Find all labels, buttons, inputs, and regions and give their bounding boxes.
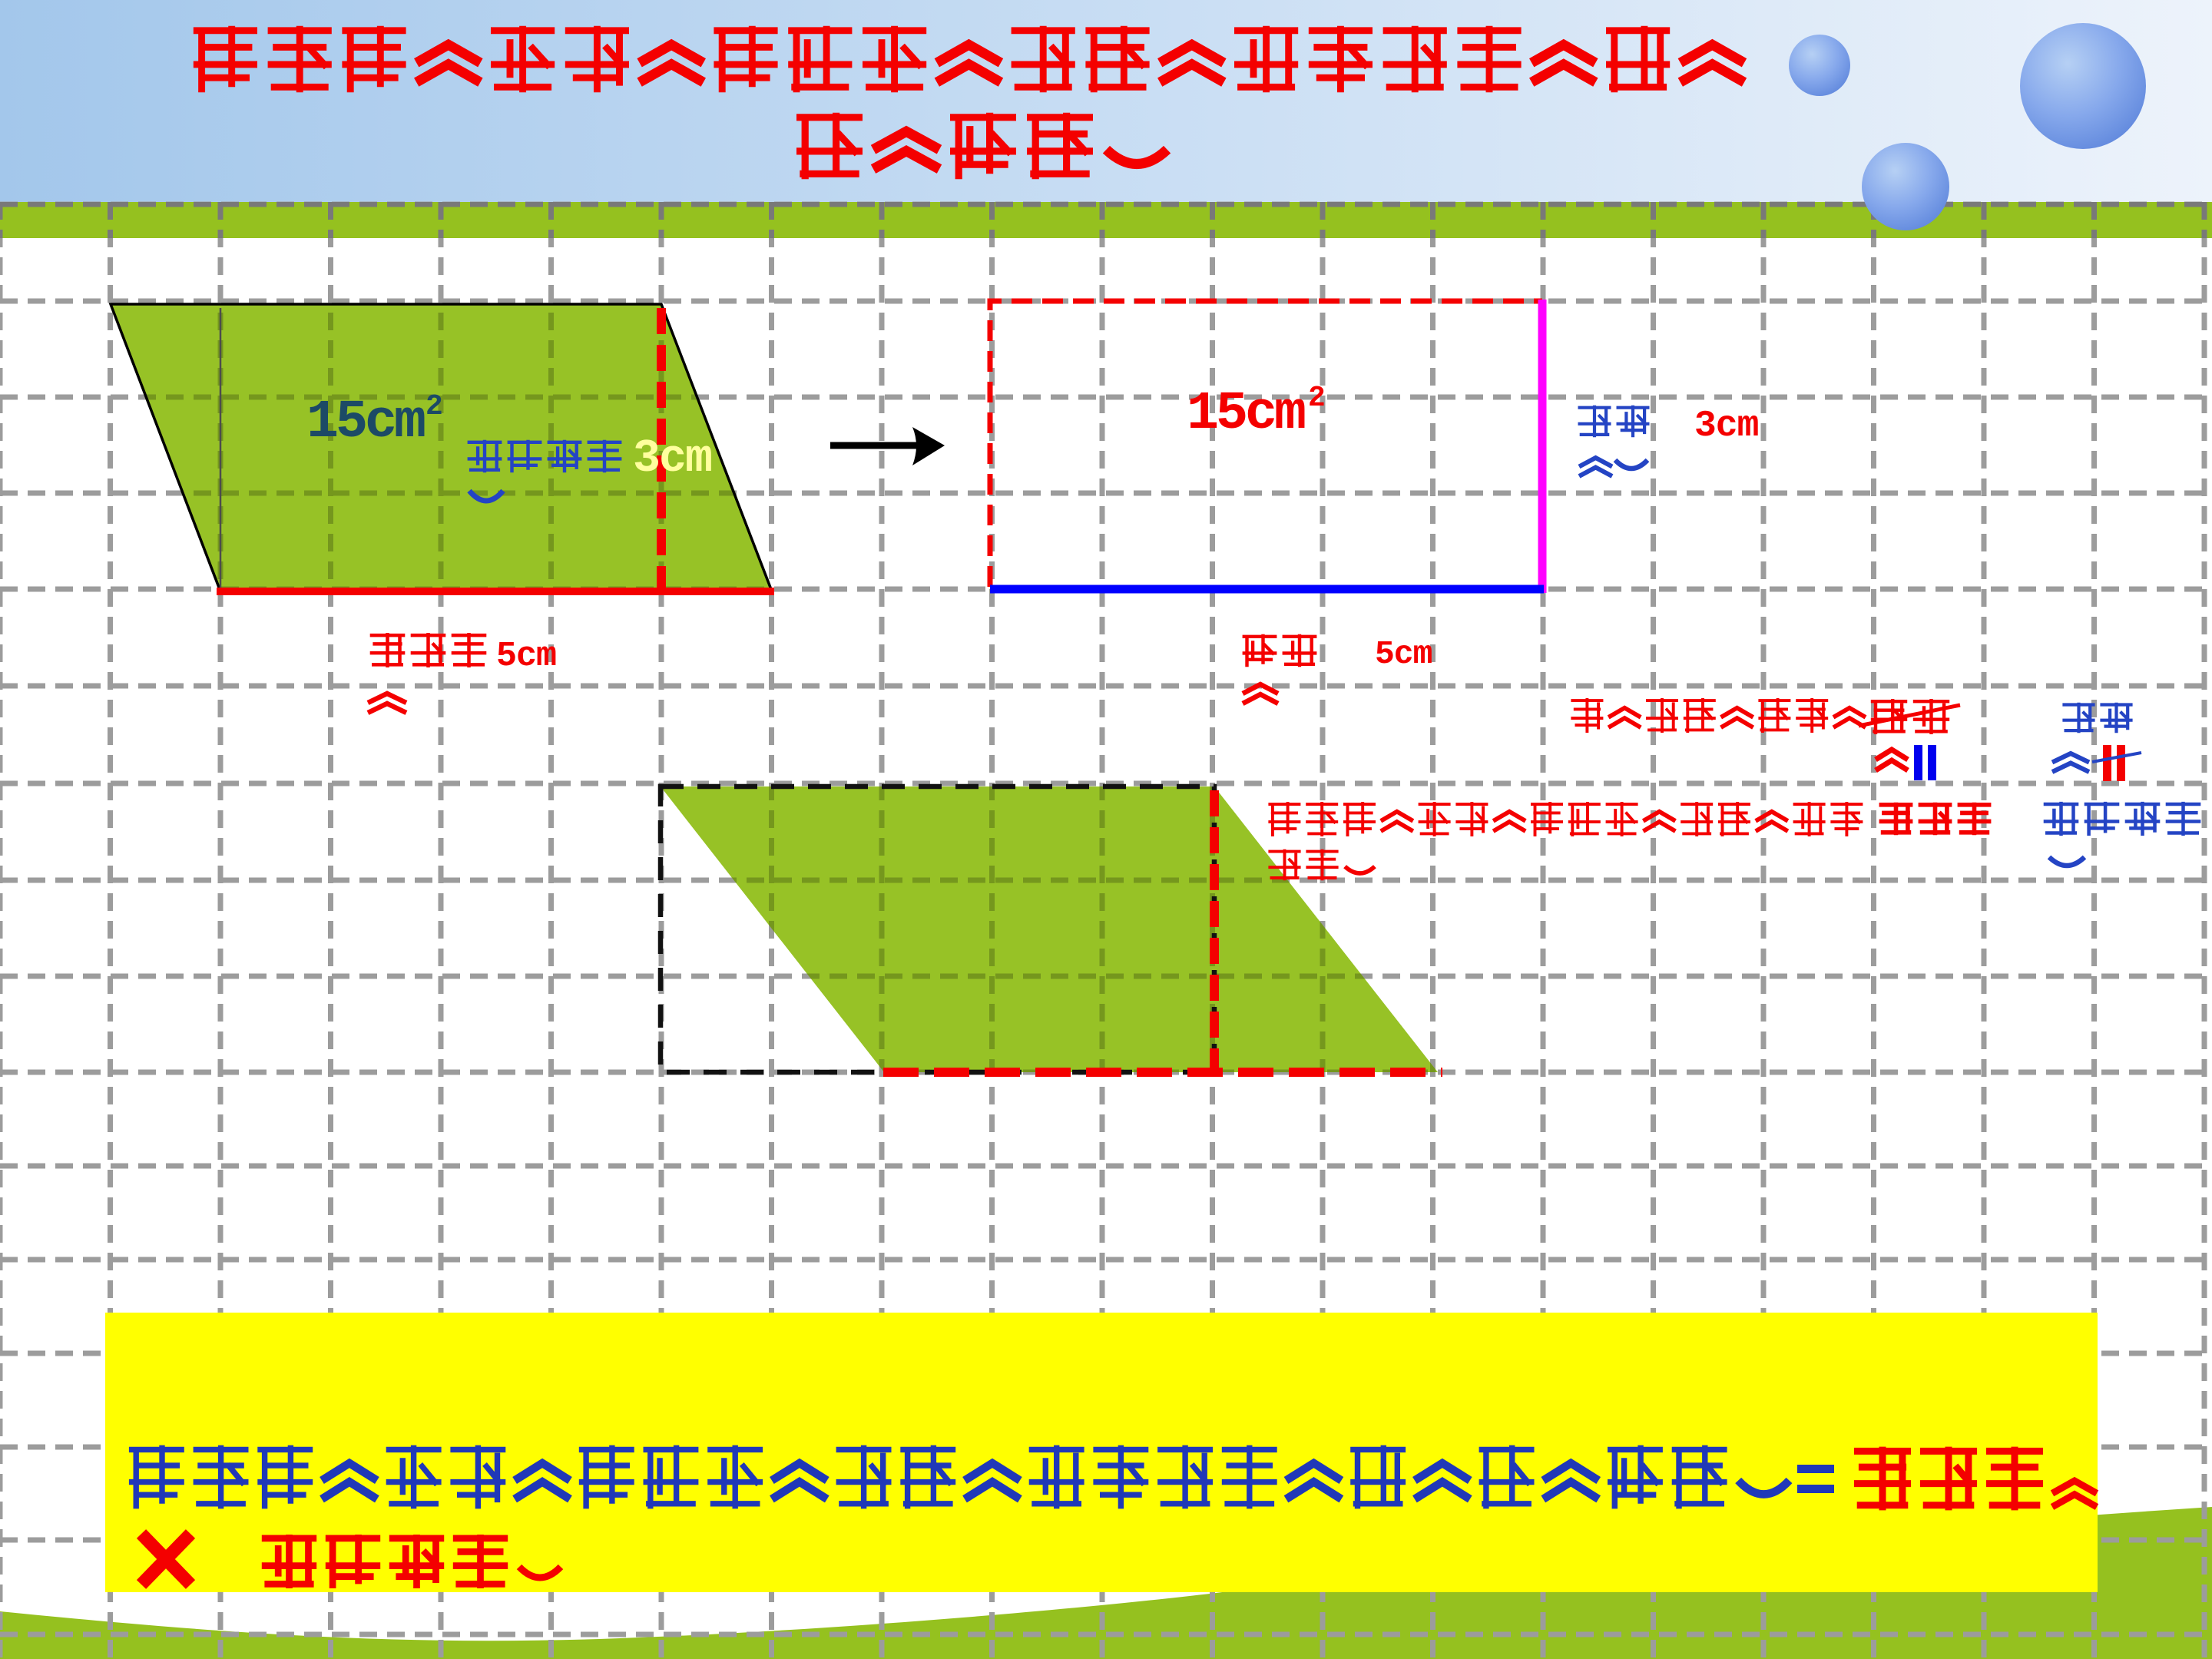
- svg-text:15cm: 15cm: [306, 392, 425, 453]
- svg-text:2: 2: [1308, 382, 1326, 415]
- svg-text:5cm: 5cm: [496, 637, 556, 676]
- svg-text:2: 2: [426, 390, 443, 423]
- svg-text:3cm: 3cm: [633, 433, 711, 485]
- svg-text:15cm: 15cm: [1187, 384, 1305, 445]
- svg-text:5cm: 5cm: [1375, 635, 1432, 673]
- svg-text:3cm: 3cm: [1694, 406, 1759, 447]
